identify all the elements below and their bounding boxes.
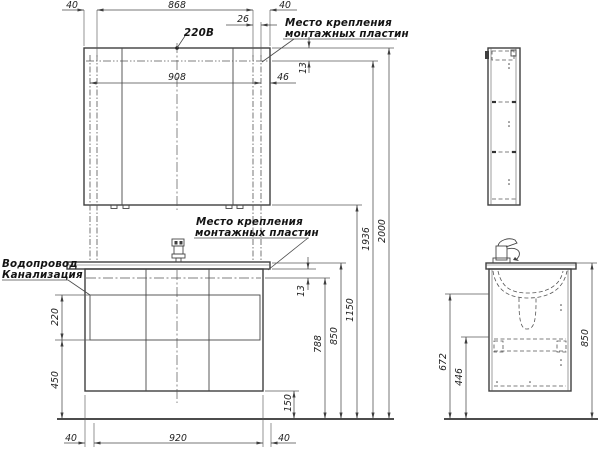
dim-top-left-40: 40: [66, 0, 78, 11]
mounting-note-top-2: монтажных пластин: [285, 28, 409, 40]
annotation-text: 220В Место крепления монтажных пластин М…: [2, 17, 409, 281]
rail-bracket-right: [557, 341, 566, 352]
dim-13-mirror: 13: [298, 62, 309, 74]
dim-446: 446: [454, 368, 465, 386]
dim-220: 220: [50, 308, 61, 326]
countertop-side: [486, 263, 576, 269]
shelf-pin-holes: [508, 63, 510, 185]
mirror-side-outline: [488, 48, 520, 205]
dim-868: 868: [168, 0, 186, 11]
countertop-front: [67, 262, 270, 269]
utilities-zone-hatch: [90, 295, 260, 340]
dim-top-right-40: 40: [279, 0, 291, 11]
mirror-side-bracket: [485, 51, 489, 59]
faucet-side: [493, 239, 519, 263]
power-label: 220В: [184, 27, 214, 39]
dim-920: 920: [169, 433, 187, 444]
dim-46: 46: [277, 72, 289, 83]
dim-13-counter: 13: [296, 285, 307, 297]
sewerage-label: Канализация: [2, 269, 83, 281]
basin-profile-inner: [498, 271, 563, 293]
dim-850: 850: [329, 327, 340, 345]
faucet-front: [172, 239, 185, 262]
side-view-vanity: [486, 239, 576, 391]
leader-lines: [2, 36, 397, 295]
dimension-lines: [62, 10, 592, 443]
dim-26: 26: [237, 14, 249, 25]
mounting-note-mid-2: монтажных пластин: [195, 227, 319, 239]
vanity-front: [67, 239, 270, 403]
dim-850-side: 850: [580, 329, 591, 347]
installation-drawing: 40 868 26 40 908 46 13 13 220 450 40 920…: [0, 0, 600, 449]
hinge-pin-holes: [496, 304, 562, 383]
rail-bracket-left: [494, 341, 503, 352]
dim-1150: 1150: [345, 298, 356, 322]
dim-bottom-right-40: 40: [278, 433, 290, 444]
dim-2000: 2000: [377, 219, 388, 243]
dim-908: 908: [168, 72, 186, 83]
dimension-text: 40 868 26 40 908 46 13 13 220 450 40 920…: [50, 0, 591, 444]
dim-1936: 1936: [361, 227, 372, 251]
vanity-body-side: [489, 269, 571, 391]
dim-450: 450: [50, 371, 61, 389]
dim-150: 150: [283, 394, 294, 412]
side-view-mirror-cabinet: [485, 48, 520, 205]
vanity-body-front: [85, 269, 263, 391]
siphon-outline: [519, 298, 536, 329]
dim-bottom-left-40: 40: [65, 433, 77, 444]
technical-drawing-page: 40 868 26 40 908 46 13 13 220 450 40 920…: [0, 0, 600, 449]
dim-788: 788: [313, 335, 324, 353]
dim-672: 672: [438, 353, 449, 371]
